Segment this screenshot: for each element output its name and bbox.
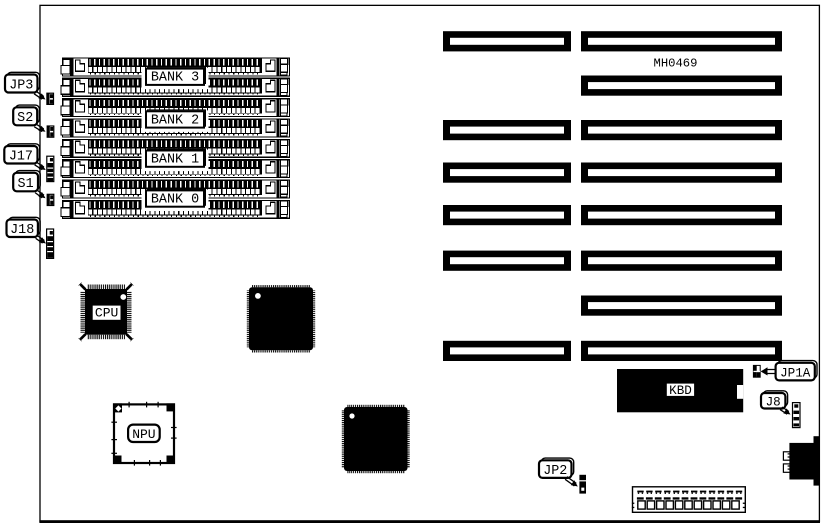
svg-text:S1: S1 bbox=[18, 177, 34, 192]
svg-text:BANK 3: BANK 3 bbox=[151, 71, 199, 86]
svg-text:CPU: CPU bbox=[95, 306, 118, 321]
svg-text:JP1A: JP1A bbox=[780, 366, 811, 380]
svg-text:BANK 1: BANK 1 bbox=[151, 153, 199, 168]
svg-text:MH0469: MH0469 bbox=[654, 57, 698, 71]
svg-text:KBD: KBD bbox=[669, 384, 692, 398]
svg-text:JP3: JP3 bbox=[9, 78, 33, 93]
svg-text:JP2: JP2 bbox=[543, 464, 567, 479]
svg-text:S2: S2 bbox=[17, 111, 33, 126]
svg-text:J8: J8 bbox=[766, 396, 781, 410]
svg-text:J18: J18 bbox=[10, 223, 34, 238]
svg-text:BANK 2: BANK 2 bbox=[151, 113, 199, 128]
svg-text:BANK 0: BANK 0 bbox=[151, 192, 199, 207]
svg-text:NPU: NPU bbox=[132, 427, 155, 442]
svg-text:J17: J17 bbox=[9, 150, 33, 165]
